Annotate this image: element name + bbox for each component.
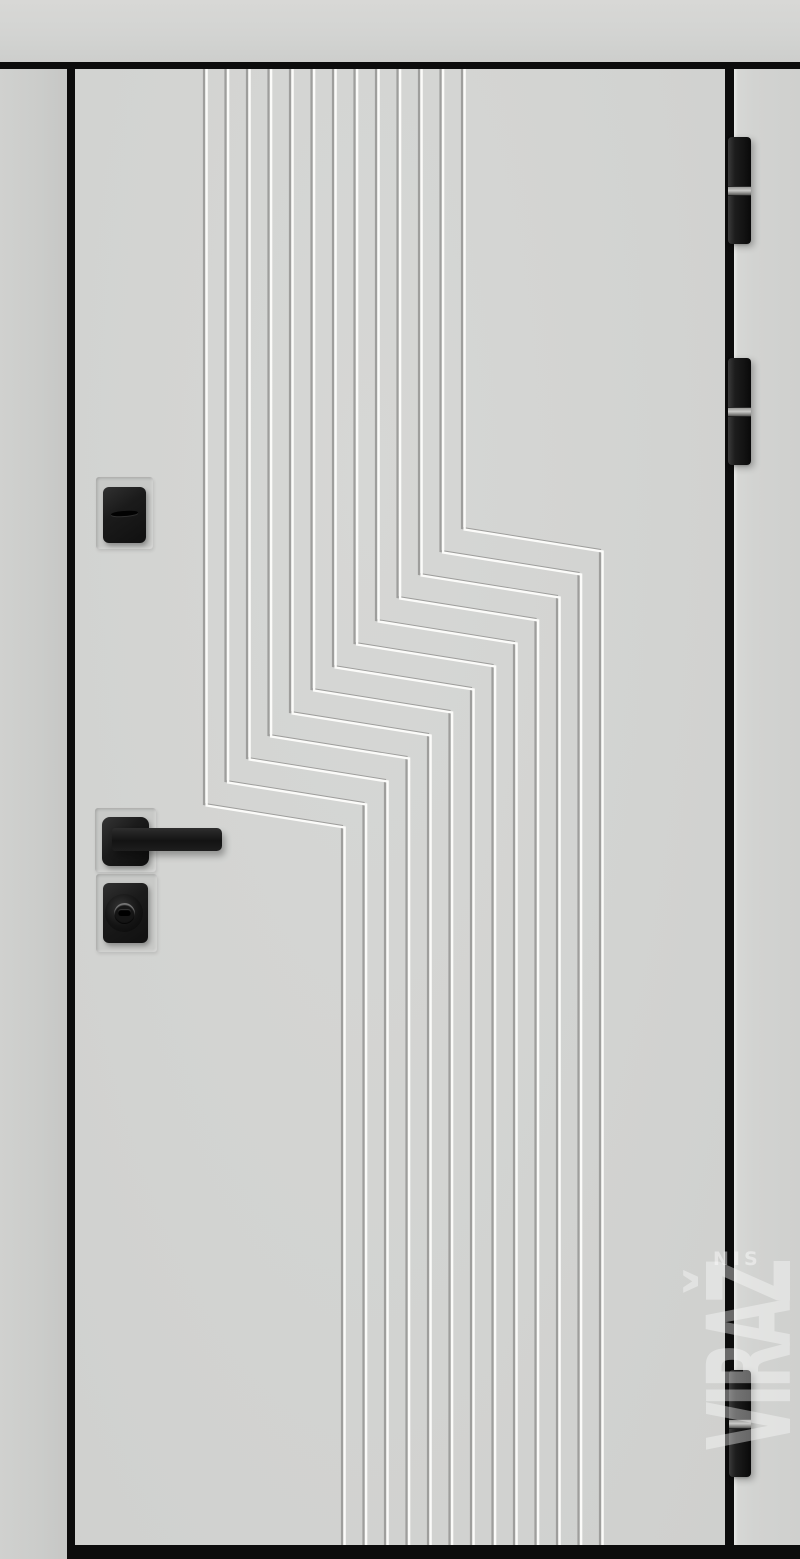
door-right-edge-line xyxy=(725,62,734,1545)
door-left-edge-line xyxy=(67,62,75,1559)
hinge-bottom-pin-band xyxy=(729,1419,751,1429)
door-leaf xyxy=(75,69,725,1545)
cylinder-keyway xyxy=(118,909,131,916)
door-frame-right-jamb xyxy=(734,69,800,1559)
hinge-middle-pin-band xyxy=(728,407,751,417)
door-bottom-bar xyxy=(75,1545,800,1559)
hinge-top-pin-band xyxy=(728,186,751,196)
wall-above-frame xyxy=(0,0,800,62)
door-product-photo: NIS VIRAŽ xyxy=(0,0,800,1559)
door-handle-lever xyxy=(112,828,222,851)
frame-top-bar xyxy=(0,62,800,69)
door-frame-left-jamb xyxy=(0,69,67,1559)
